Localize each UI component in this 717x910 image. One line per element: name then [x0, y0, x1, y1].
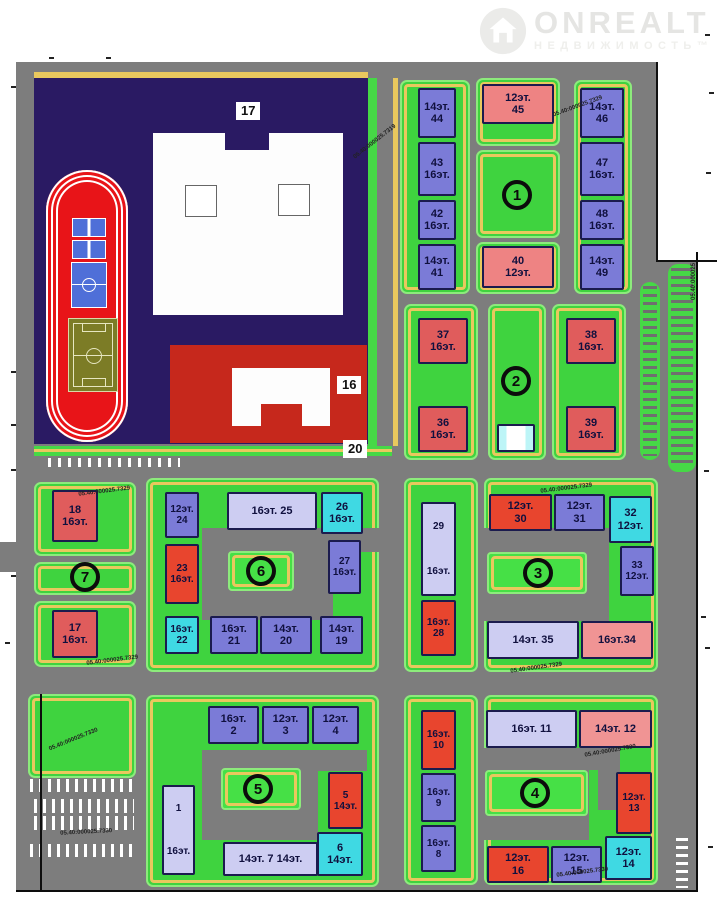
building-7: 14эт. 7 14эт. [223, 842, 318, 876]
building-31: 12эт.31 [554, 494, 605, 531]
building-6: 614эт. [317, 832, 363, 876]
building-5: 514эт. [328, 772, 363, 829]
building-9: 16эт.9 [421, 773, 456, 822]
building-label: 16эт. [167, 846, 190, 857]
quarter-number: 4 [531, 785, 539, 802]
building-label: 16эт. [424, 220, 450, 232]
plot-boundary-line [696, 252, 698, 892]
building-q2-small [497, 424, 535, 452]
building-label: 12эт. [323, 713, 349, 725]
plot-boundary-line [16, 890, 698, 892]
building-label: 44 [431, 113, 443, 125]
building-label: 23 [176, 563, 187, 574]
building-23: 2316эт. [165, 544, 199, 604]
building-label: 42 [431, 208, 443, 220]
building-label: 19 [335, 635, 347, 647]
building-label: 39 [585, 417, 597, 429]
boundary-tick [49, 57, 54, 59]
building-label: 36 [437, 417, 449, 429]
building-label: 31 [573, 513, 585, 525]
quarter-number: 1 [513, 187, 521, 204]
building-label: 47 [596, 157, 608, 169]
facility-label-17: 17 [236, 102, 260, 120]
building-21: 16эт.21 [210, 616, 258, 654]
building-label: 6 [337, 842, 343, 854]
building-16: 12эт.16 [487, 846, 549, 883]
building-label: 48 [596, 208, 608, 220]
building-label: 12эт. [618, 520, 644, 532]
building-label: 12эт. [505, 852, 531, 864]
school-courtyard [278, 184, 310, 216]
boundary-tick [11, 575, 16, 577]
building-label: 16эт. [427, 566, 450, 577]
site-plan: ONREALT НЕДВИЖИМОСТЬ™ 14эт.444316эт.4216… [0, 0, 717, 910]
building-24: 12эт.24 [165, 492, 199, 538]
green-strip [368, 78, 377, 446]
quarter-number: 7 [81, 569, 89, 586]
building-label: 46 [596, 113, 608, 125]
parking-row [676, 838, 688, 888]
building-label: 16эт. [333, 567, 356, 578]
building-25: 16эт. 25 [227, 492, 317, 530]
building-32: 3212эт. [609, 496, 652, 543]
building-label: 16эт. [170, 624, 193, 635]
building-29: 2916эт. [421, 502, 456, 596]
building-8: 16эт.8 [421, 825, 456, 872]
building-label: 16эт. [427, 838, 450, 849]
building-48: 4816эт. [580, 200, 624, 240]
building-label: 12эт. [564, 852, 590, 864]
building-label: 17 [69, 622, 81, 634]
building-label: 16эт. [589, 220, 615, 232]
building-label: 22 [176, 635, 187, 646]
school-courtyard [185, 185, 217, 217]
building-13: 12эт.13 [616, 772, 652, 834]
building-43: 4316эт. [418, 142, 456, 196]
volleyball-court-1 [72, 218, 106, 237]
building-49: 14эт.49 [580, 244, 624, 290]
building-label: 16эт. 25 [252, 505, 293, 517]
building-2: 16эт.2 [208, 706, 259, 744]
building-10: 16эт.10 [421, 710, 456, 770]
building-label: 5 [343, 790, 349, 801]
house-icon [478, 6, 528, 56]
boundary-tick [704, 470, 709, 472]
building-label: 21 [228, 635, 240, 647]
quarter-number: 5 [254, 781, 262, 798]
building-label: 29 [433, 521, 444, 532]
building-label: 16эт. [589, 169, 615, 181]
building-label: 43 [431, 157, 443, 169]
quarter-number: 6 [257, 563, 265, 580]
facility-label-16: 16 [337, 376, 361, 394]
building-11: 16эт. 11 [486, 710, 577, 748]
watermark-text: ONREALT НЕДВИЖИМОСТЬ™ [534, 7, 713, 55]
building-label: 12эт. [170, 504, 193, 515]
building-label: 16эт. [578, 429, 604, 441]
basketball-court [71, 262, 107, 308]
parking-row [30, 844, 136, 857]
boundary-tick [11, 86, 16, 88]
building-label: 14эт. 7 14эт. [239, 853, 303, 865]
building-label: 2 [230, 725, 236, 737]
building-12: 14эт. 12 [579, 710, 652, 748]
building-label: 12эт. [508, 500, 534, 512]
building-47: 4716эт. [580, 142, 624, 196]
building-label: 8 [436, 849, 442, 860]
building-label: 28 [433, 628, 444, 639]
building-40: 4012эт. [482, 246, 554, 288]
building-35: 14эт. 35 [487, 621, 579, 659]
building-label: 12эт. [505, 92, 531, 104]
building-3: 12эт.3 [262, 706, 309, 744]
quarter-circle-5: 5 [243, 774, 273, 804]
building-30: 12эт.30 [489, 494, 552, 531]
plot-boundary-line [40, 694, 42, 890]
brand-name: ONREALT [534, 7, 713, 38]
building-label: 12эт. [616, 846, 642, 858]
building-label: 14эт. [273, 623, 299, 635]
green-strip [34, 446, 392, 456]
building-19: 14эт.19 [320, 616, 363, 654]
building-label: 16эт. [427, 729, 450, 740]
building-label: 1 [176, 803, 182, 814]
building-label: 16эт. [578, 341, 604, 353]
court-circle [82, 278, 96, 292]
brand-subtitle: НЕДВИЖИМОСТЬ™ [534, 38, 713, 55]
building-label: 18 [69, 504, 81, 516]
building-label: 33 [631, 560, 642, 571]
building-label: 40 [512, 255, 524, 267]
boundary-tick [701, 616, 706, 618]
building-label: 24 [176, 515, 187, 526]
boundary-tick [709, 92, 714, 94]
building-33: 3312эт. [620, 546, 654, 596]
building-42: 4216эт. [418, 200, 456, 240]
building-20: 14эт.20 [260, 616, 312, 654]
parking-row [34, 799, 134, 813]
school-building [153, 133, 343, 315]
penalty-box [82, 323, 106, 332]
quarter-circle-7: 7 [70, 562, 100, 592]
plot-boundary-corner [656, 62, 717, 262]
building-38: 3816эт. [566, 318, 616, 364]
parking-strip [640, 282, 660, 460]
building-label: 16эт. [221, 713, 247, 725]
building-label: 16эт. [430, 429, 456, 441]
building-label: 16 [512, 865, 524, 877]
building-36: 3616эт. [418, 406, 468, 452]
building-label: 14эт. [424, 255, 450, 267]
building-27: 2716эт. [328, 540, 361, 594]
court-line [72, 284, 106, 285]
field-center-circle [86, 348, 102, 364]
building-label: 14эт. 35 [513, 634, 554, 646]
building-label: 16эт. 11 [511, 723, 551, 735]
penalty-box [82, 378, 106, 387]
building-label: 12эт. [273, 713, 299, 725]
building-37: 3716эт. [418, 318, 468, 364]
boundary-tick [706, 172, 711, 174]
quarter-circle-4: 4 [520, 778, 550, 808]
football-field [68, 318, 118, 392]
building-4: 12эт.4 [312, 706, 359, 744]
building-label: 20 [280, 635, 292, 647]
boundary-tick [11, 469, 16, 471]
building-label: 16эт. [427, 617, 450, 628]
building-label: 14эт. [329, 623, 355, 635]
quarter-circle-6: 6 [246, 556, 276, 586]
building-22: 16эт.22 [165, 616, 199, 654]
building-46: 14эт.46 [580, 88, 624, 138]
building-14: 12эт.14 [605, 836, 652, 880]
building-label: 14эт. [589, 255, 615, 267]
volleyball-court-2 [72, 240, 106, 259]
building-17: 1716эт. [52, 610, 98, 658]
boundary-tick [705, 647, 710, 649]
building-label: 4 [332, 725, 338, 737]
building-label: 12эт. [505, 267, 531, 279]
building-39: 3916эт. [566, 406, 616, 452]
quarter-circle-3: 3 [523, 558, 553, 588]
building-label: 16эт. [62, 516, 88, 528]
boundary-tick [5, 642, 10, 644]
boundary-tick [708, 846, 713, 848]
building-44: 14эт.44 [418, 88, 456, 138]
building-label: 12эт. [567, 500, 593, 512]
building-label: 16эт. [424, 169, 450, 181]
boundary-tick [11, 424, 16, 426]
building-18: 1816эт. [52, 490, 98, 542]
building-label: 12эт. [625, 571, 648, 582]
quarter-number: 3 [534, 565, 542, 582]
building-label: 10 [433, 740, 444, 751]
building-label: 41 [431, 267, 443, 279]
quarter-number: 2 [512, 373, 520, 390]
building-label: 16эт.34 [598, 634, 636, 646]
building-label: 9 [436, 798, 442, 809]
building-label: 30 [514, 513, 526, 525]
building-26: 2616эт. [321, 492, 363, 534]
boundary-tick [106, 57, 111, 59]
parking-row [30, 779, 136, 792]
building-label: 27 [339, 556, 350, 567]
building-34: 16эт.34 [581, 621, 653, 659]
kindergarten-notch [261, 404, 302, 426]
building-label: 37 [437, 329, 449, 341]
parking-spaces [643, 286, 657, 456]
building-label: 14 [622, 858, 634, 870]
building-28: 16эт.28 [421, 600, 456, 656]
building-label: 45 [512, 104, 524, 116]
building-label: 16эт. [170, 574, 193, 585]
building-label: 16эт. [62, 634, 88, 646]
onrealt-watermark: ONREALT НЕДВИЖИМОСТЬ™ [478, 2, 714, 60]
building-label: 16эт. [430, 341, 456, 353]
building-label: 16эт. [427, 787, 450, 798]
boundary-tick [11, 371, 16, 373]
path-strip [34, 72, 368, 78]
quarter-circle-2: 2 [501, 366, 531, 396]
building-label: 12эт. [622, 792, 645, 803]
building-label: 16эт. [221, 623, 247, 635]
building-label: 32 [624, 507, 636, 519]
building-label: 26 [336, 501, 348, 513]
building-41: 14эт.41 [418, 244, 456, 290]
building-label: 49 [596, 267, 608, 279]
building-label: 38 [585, 329, 597, 341]
path-strip [393, 78, 398, 446]
building-label: 3 [282, 725, 288, 737]
building-label: 13 [628, 803, 639, 814]
facility-label-20: 20 [343, 440, 367, 458]
building-label: 16эт. [329, 513, 355, 525]
building-label: 14эт. 12 [595, 723, 636, 735]
building-45: 12эт.45 [482, 84, 554, 124]
street-parking-ticks [48, 458, 180, 467]
building-1: 116эт. [162, 785, 195, 875]
building-label: 14эт. [327, 854, 353, 866]
school-notch [225, 133, 269, 150]
building-label: 14эт. [334, 801, 357, 812]
quarter-circle-1: 1 [502, 180, 532, 210]
building-label: 14эт. [424, 101, 450, 113]
